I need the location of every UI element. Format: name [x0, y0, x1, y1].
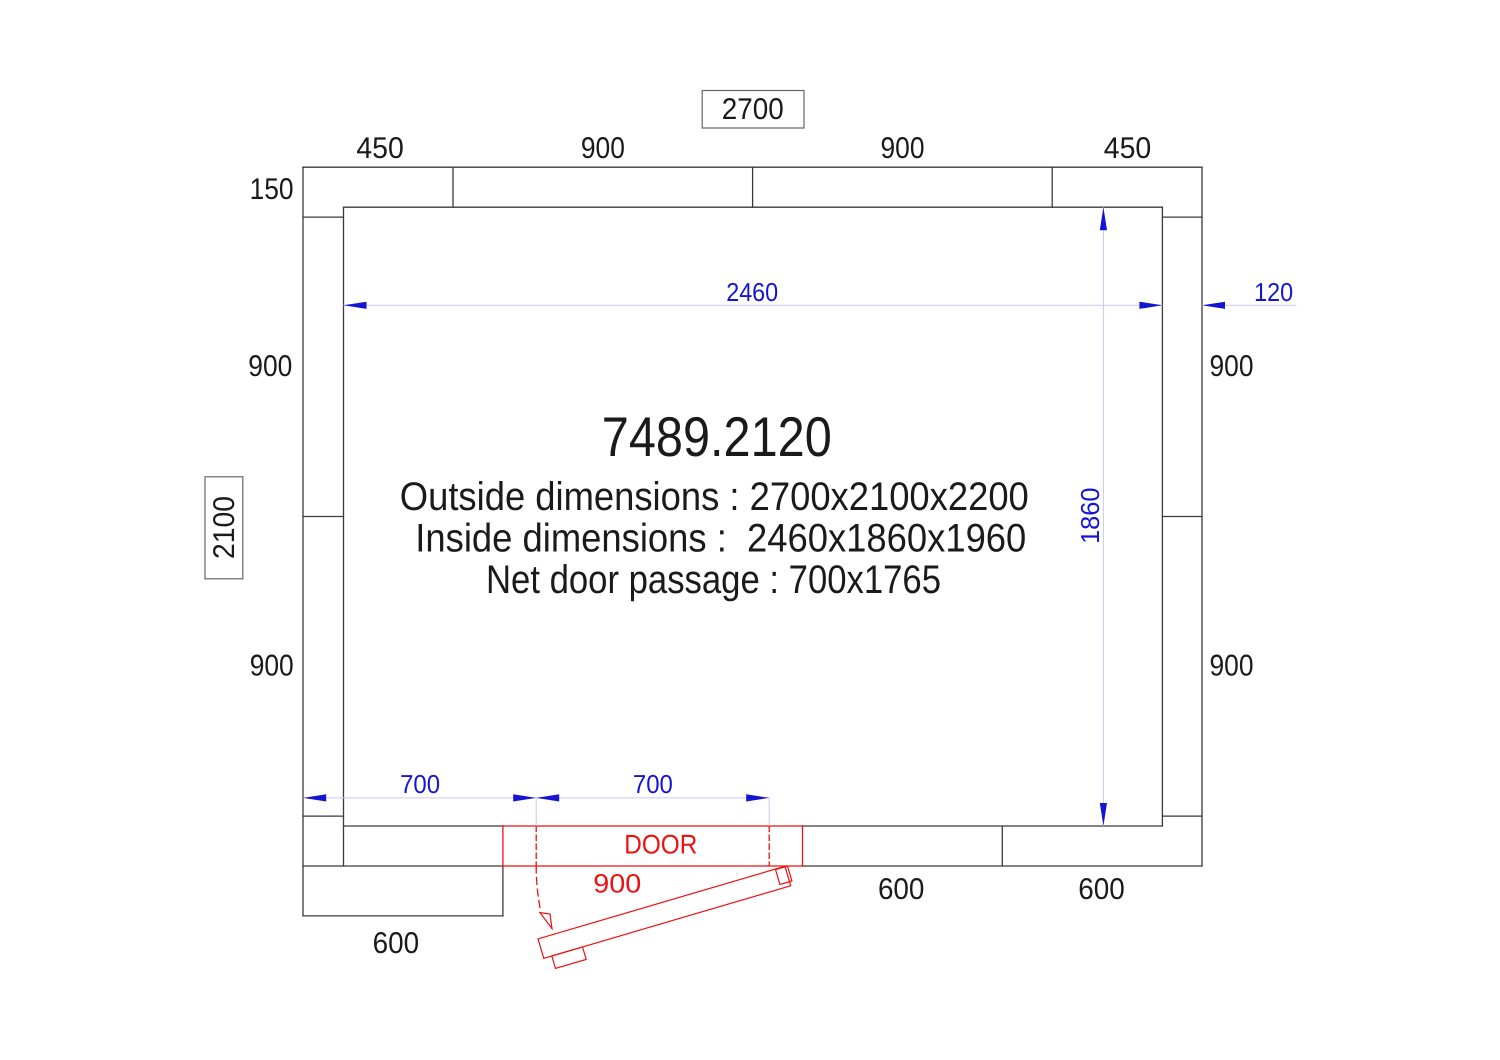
- svg-text:900: 900: [593, 868, 641, 898]
- svg-text:600: 600: [878, 873, 925, 906]
- svg-text:2700: 2700: [722, 93, 784, 126]
- svg-text:700: 700: [400, 769, 440, 799]
- svg-text:900: 900: [250, 650, 294, 683]
- svg-text:900: 900: [1210, 650, 1254, 683]
- svg-text:Inside dimensions : 2460x1860: Inside dimensions : 2460x1860x1960: [415, 516, 1026, 560]
- svg-text:900: 900: [581, 132, 625, 165]
- svg-text:150: 150: [250, 173, 294, 206]
- svg-text:900: 900: [1210, 350, 1254, 383]
- svg-text:700: 700: [633, 769, 673, 799]
- svg-text:900: 900: [881, 132, 925, 165]
- svg-text:Outside dimensions : 2700x2100: Outside dimensions : 2700x2100x2200: [400, 475, 1029, 519]
- svg-text:600: 600: [1078, 873, 1125, 906]
- svg-text:900: 900: [248, 350, 292, 383]
- svg-text:7489.2120: 7489.2120: [602, 405, 832, 468]
- svg-text:120: 120: [1254, 277, 1293, 307]
- svg-text:Net door passage : 700x1765: Net door passage : 700x1765: [486, 558, 941, 602]
- svg-text:DOOR: DOOR: [624, 830, 697, 860]
- svg-text:450: 450: [356, 132, 404, 165]
- svg-text:1860: 1860: [1075, 487, 1105, 544]
- svg-text:600: 600: [373, 927, 420, 960]
- svg-text:2100: 2100: [208, 496, 241, 559]
- svg-text:2460: 2460: [726, 277, 778, 307]
- svg-text:450: 450: [1104, 132, 1152, 165]
